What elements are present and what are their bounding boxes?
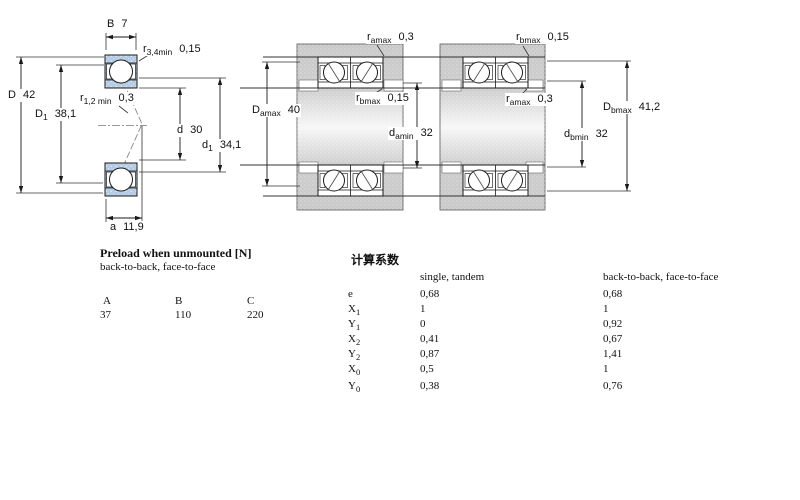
dim-value: 32 (421, 127, 433, 139)
factor-value-paired: 0,92 (603, 318, 622, 330)
factor-value-single: 0 (420, 318, 426, 330)
factor-symbol: e (348, 288, 353, 302)
dim-value: 7 (121, 18, 127, 30)
factor-value-paired: 0,76 (603, 380, 622, 392)
factor-symbol: X1 (348, 303, 360, 317)
dim-subscript: 1 (43, 112, 48, 122)
factor-sym-sub: 1 (356, 307, 360, 317)
factor-value-paired: 1,41 (603, 348, 622, 360)
dim-symbol: D (603, 101, 611, 113)
dim-symbol: a (110, 221, 116, 233)
dim-subscript: amin (395, 131, 413, 141)
dim-label-Dbmax: Dbmax41,2 (602, 101, 661, 114)
preload-col-header: B (175, 295, 182, 307)
dim-value: 32 (596, 128, 608, 140)
dim-value: 40 (288, 104, 300, 116)
factor-sym-text: e (348, 288, 353, 300)
dim-value: 0,15 (387, 92, 408, 104)
factor-sym-text: Y (348, 318, 356, 330)
dim-value: 0,3 (119, 92, 134, 104)
dim-value: 0,15 (179, 43, 200, 55)
factor-value-single: 0,41 (420, 333, 439, 345)
factor-value-paired: 0,68 (603, 288, 622, 300)
factor-sym-sub: 2 (356, 337, 360, 347)
dim-value: 41,2 (639, 101, 660, 113)
dim-subscript: bmax (520, 35, 541, 45)
factor-symbol: Y1 (348, 318, 360, 332)
bearing-datasheet-page: B7 r3,4min0,15 D42 D138,1 r1,2 min0,3 d3… (0, 0, 800, 500)
dim-symbol: B (107, 18, 114, 30)
dim-value: 42 (23, 89, 35, 101)
dim-value: 0,3 (537, 93, 552, 105)
dim-subscript: 1 (208, 143, 213, 153)
factors-col1-header: single, tandem (420, 271, 484, 283)
dim-subscript: amax (260, 108, 281, 118)
factor-value-paired: 1 (603, 363, 609, 375)
dim-subscript: 1,2 min (84, 96, 112, 106)
factor-sym-sub: 0 (356, 367, 360, 377)
dim-label-B: B7 (106, 18, 128, 31)
dim-subscript: 3,4min (147, 47, 173, 57)
factor-value-single: 1 (420, 303, 426, 315)
preload-col-header: C (247, 295, 254, 307)
factor-sym-text: X (348, 303, 356, 315)
dim-label-rbmax-mid: rbmax0,15 (355, 92, 410, 105)
dim-label-damin: damin32 (388, 127, 434, 140)
preload-value: 37 (100, 309, 111, 321)
dim-label-a: a11,9 (109, 221, 145, 234)
factor-value-single: 0,5 (420, 363, 434, 375)
dim-value: 0,15 (547, 31, 568, 43)
dim-subscript: bmin (570, 132, 588, 142)
factor-symbol: Y2 (348, 348, 360, 362)
factor-value-paired: 0,67 (603, 333, 622, 345)
ball (110, 168, 133, 191)
factor-sym-text: X (348, 333, 356, 345)
factor-sym-sub: 2 (356, 352, 360, 362)
factor-value-paired: 1 (603, 303, 609, 315)
dim-subscript: amax (510, 97, 531, 107)
dim-label-rbmax-top: rbmax0,15 (515, 31, 570, 44)
factor-value-single: 0,87 (420, 348, 439, 360)
factor-symbol: Y0 (348, 380, 360, 394)
dim-label-dbmin: dbmin32 (563, 128, 609, 141)
dim-label-D: D42 (7, 89, 36, 102)
dim-label-r34min: r3,4min0,15 (142, 43, 202, 56)
factor-value-single: 0,68 (420, 288, 439, 300)
preload-title: Preload when unmounted [N] (100, 246, 251, 261)
factor-symbol: X2 (348, 333, 360, 347)
dim-value: 11,9 (123, 221, 144, 233)
factor-sym-text: Y (348, 348, 356, 360)
dim-value: 34,1 (220, 139, 241, 151)
bearing-ring-bottom (105, 163, 137, 196)
bearing-ring-top (105, 55, 137, 88)
ball (110, 60, 133, 83)
dim-label-r12min: r1,2 min0,3 (79, 92, 135, 105)
factors-title: 计算系数 (351, 251, 399, 268)
dim-symbol: D (35, 108, 43, 120)
dim-symbol: D (252, 104, 260, 116)
preload-col-header: A (103, 295, 111, 307)
dim-label-d: d30 (176, 124, 203, 137)
preload-subtitle: back-to-back, face-to-face (100, 261, 215, 273)
factor-value-single: 0,38 (420, 380, 439, 392)
dim-value: 0,3 (398, 31, 413, 43)
dim-subscript: bmax (611, 105, 632, 115)
dim-label-ramax-mid: ramax0,3 (505, 93, 554, 106)
preload-value: 110 (175, 309, 191, 321)
dim-subscript: bmax (360, 96, 381, 106)
dim-label-Damax: Damax40 (251, 104, 301, 117)
dim-value: 30 (190, 124, 202, 136)
dim-label-D1: D138,1 (34, 108, 77, 121)
factor-symbol: X0 (348, 363, 360, 377)
factors-col2-header: back-to-back, face-to-face (603, 271, 718, 283)
dim-label-d1: d134,1 (201, 139, 242, 152)
dim-label-ramax-top: ramax0,3 (366, 31, 415, 44)
factor-sym-sub: 0 (356, 384, 360, 394)
mounted-arrangements (240, 44, 631, 210)
factor-sym-sub: 1 (356, 322, 360, 332)
dim-symbol: D (8, 89, 16, 101)
dim-symbol: d (177, 124, 183, 136)
factor-sym-text: X (348, 363, 356, 375)
dim-subscript: amax (371, 35, 392, 45)
factor-sym-text: Y (348, 380, 356, 392)
dim-value: 38,1 (55, 108, 76, 120)
preload-value: 220 (247, 309, 264, 321)
